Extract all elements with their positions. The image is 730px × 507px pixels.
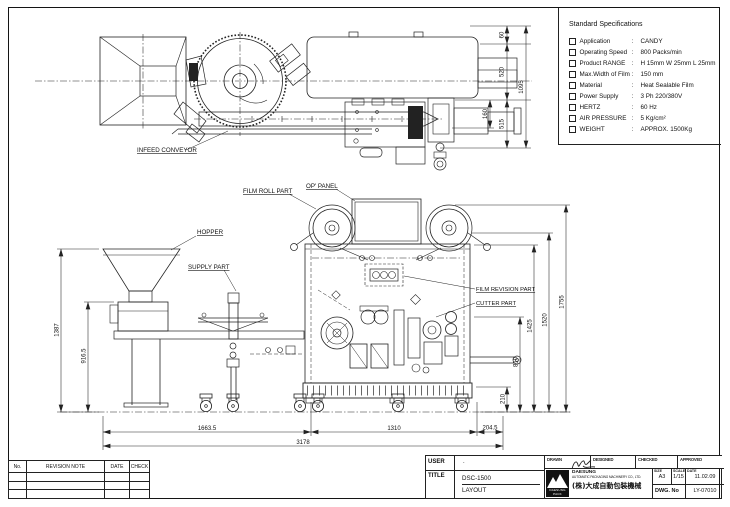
drawing-sheet: 60 520 515 1095 160 1755 1520 1425 810 2… — [0, 0, 730, 507]
spec-label: Application — [580, 38, 632, 45]
rev-col-note: REVISION NOTE — [27, 461, 105, 472]
company-cell: DAESUNG AUTOMATIC PACKAGING MACHINERY CO… — [570, 469, 654, 499]
spec-panel: Standard Specifications Application:CAND… — [558, 8, 721, 145]
dwg-no-label: DWG. No — [652, 485, 685, 498]
label-supply-part: SUPPLY PART — [188, 264, 230, 271]
spec-label: Operating Speed — [580, 49, 632, 56]
rev-col-no: No. — [9, 461, 27, 472]
dim-520: 520 — [500, 66, 506, 77]
leader-lines — [171, 131, 475, 317]
revision-row — [9, 473, 149, 482]
revision-row — [9, 482, 149, 491]
company-logo: DAESUNG PACK — [545, 469, 572, 500]
label-cutter-part: CUTTER PART — [476, 301, 517, 307]
spec-label: Power Supply — [580, 93, 632, 100]
title-block: USER . TITLE DSC-1500 LAYOUT DRAWN DESIG… — [425, 455, 722, 499]
dim-916-5: 916.5 — [82, 348, 88, 364]
spec-value: APPROX. 1500Kg — [641, 126, 692, 133]
part-labels: INFEED CONVEYOR FILM ROLL PART OP' PANEL… — [137, 147, 536, 307]
drawing-subtitle: LAYOUT — [462, 487, 544, 494]
dim-810: 810 — [514, 356, 520, 367]
spec-row: AIR PRESSURE:5 Kg/cm² — [569, 113, 721, 124]
sign-approved: APPROVED — [677, 456, 724, 469]
size-value: A3 — [653, 474, 671, 480]
dimension-texts: 60 520 515 1095 160 1755 1520 1425 810 2… — [55, 31, 566, 446]
date-cell: DATE 11.02.09 — [685, 469, 724, 485]
label-film-revision-part: FILM REVISION PART — [476, 287, 536, 293]
checkbox-icon — [569, 60, 576, 67]
scale-cell: SCALE 1/15 — [671, 469, 685, 485]
spec-row: Power Supply:3 Ph 220/380V — [569, 91, 721, 102]
rev-col-check: CHECK — [130, 461, 149, 472]
checkbox-icon — [569, 71, 576, 78]
checkbox-icon — [569, 115, 576, 122]
dim-1310: 1310 — [387, 426, 401, 432]
dim-1755: 1755 — [560, 295, 566, 309]
spec-label: Max.Width of Film — [580, 71, 632, 78]
checkbox-icon — [569, 49, 576, 56]
title-block-right: DRAWN DESIGNED CHECKED APPROVED DAESUNG … — [544, 456, 723, 498]
company-cjk-name: (株)大成自動包裝機械 — [572, 481, 654, 491]
user-label: USER — [426, 456, 455, 471]
checkbox-icon — [569, 104, 576, 111]
rev-col-date: DATE — [105, 461, 130, 472]
spec-row: HERTZ:60 Hz — [569, 102, 721, 113]
dim-1663-5: 1663.5 — [198, 426, 217, 432]
label-op-panel: OP' PANEL — [306, 183, 338, 190]
company-full-name: AUTOMATIC PACKAGING MACHINERY CO., LTD. — [572, 475, 654, 479]
dwg-no-value: LY-07010 — [685, 485, 724, 498]
label-film-roll-part: FILM ROLL PART — [243, 188, 293, 195]
spec-value: H 15mm W 25mm L 25mm — [641, 60, 716, 67]
sign-checked: CHECKED — [635, 456, 677, 469]
dim-515: 515 — [500, 118, 506, 129]
drawing-title: DSC-1500 — [462, 475, 540, 485]
dim-1520: 1520 — [543, 313, 549, 327]
user-value: . — [455, 456, 544, 471]
signature-mark — [569, 457, 599, 473]
date-value: 11.02.09 — [686, 474, 724, 480]
spec-label: Material — [580, 82, 632, 89]
label-hopper: HOPPER — [197, 229, 224, 236]
dim-210: 210 — [501, 393, 507, 404]
spec-label: AIR PRESSURE — [580, 115, 632, 122]
spec-row: Product RANGE:H 15mm W 25mm L 25mm — [569, 58, 721, 69]
spec-row: Max.Width of Film:150 mm — [569, 69, 721, 80]
scale-value: 1/15 — [672, 474, 685, 480]
dim-1425: 1425 — [528, 319, 534, 333]
dim-160: 160 — [483, 108, 489, 119]
dim-3178: 3178 — [296, 440, 310, 446]
checkbox-icon — [569, 126, 576, 133]
spec-value: 5 Kg/cm² — [641, 115, 666, 122]
spec-title: Standard Specifications — [569, 21, 721, 28]
revision-table-header: No. REVISION NOTE DATE CHECK — [9, 461, 149, 473]
spec-value: 60 Hz — [641, 104, 657, 111]
dim-204-5: 204.5 — [482, 426, 498, 432]
title-value: DSC-1500 LAYOUT — [455, 471, 544, 498]
title-label: TITLE — [426, 471, 455, 498]
revision-table: No. REVISION NOTE DATE CHECK — [8, 460, 150, 499]
checkbox-icon — [569, 38, 576, 45]
spec-value: Heat Sealable Film — [641, 82, 694, 89]
top-view-drawing — [35, 32, 532, 170]
spec-row: Application:CANDY — [569, 36, 721, 47]
spec-label: WEIGHT — [580, 126, 632, 133]
dim-60: 60 — [500, 31, 506, 38]
logo-caption: DAESUNG PACK — [546, 488, 569, 496]
spec-row: Material:Heat Sealable Film — [569, 80, 721, 91]
dim-1387: 1387 — [55, 323, 61, 337]
label-infeed-conveyor: INFEED CONVEYOR — [137, 147, 197, 154]
revision-row — [9, 490, 149, 498]
spec-label: Product RANGE — [580, 60, 632, 67]
spec-value: 3 Ph 220/380V — [641, 93, 683, 100]
dim-1095: 1095 — [519, 80, 525, 94]
size-cell: SIZE A3 — [652, 469, 671, 485]
checkbox-icon — [569, 82, 576, 89]
spec-row: WEIGHT:APPROX. 1500Kg — [569, 124, 721, 135]
spec-value: 800 Packs/min — [641, 49, 682, 56]
spec-label: HERTZ — [580, 104, 632, 111]
spec-row: Operating Speed:800 Packs/min — [569, 47, 721, 58]
checkbox-icon — [569, 93, 576, 100]
spec-value: 150 mm — [641, 71, 664, 78]
spec-value: CANDY — [641, 38, 663, 45]
